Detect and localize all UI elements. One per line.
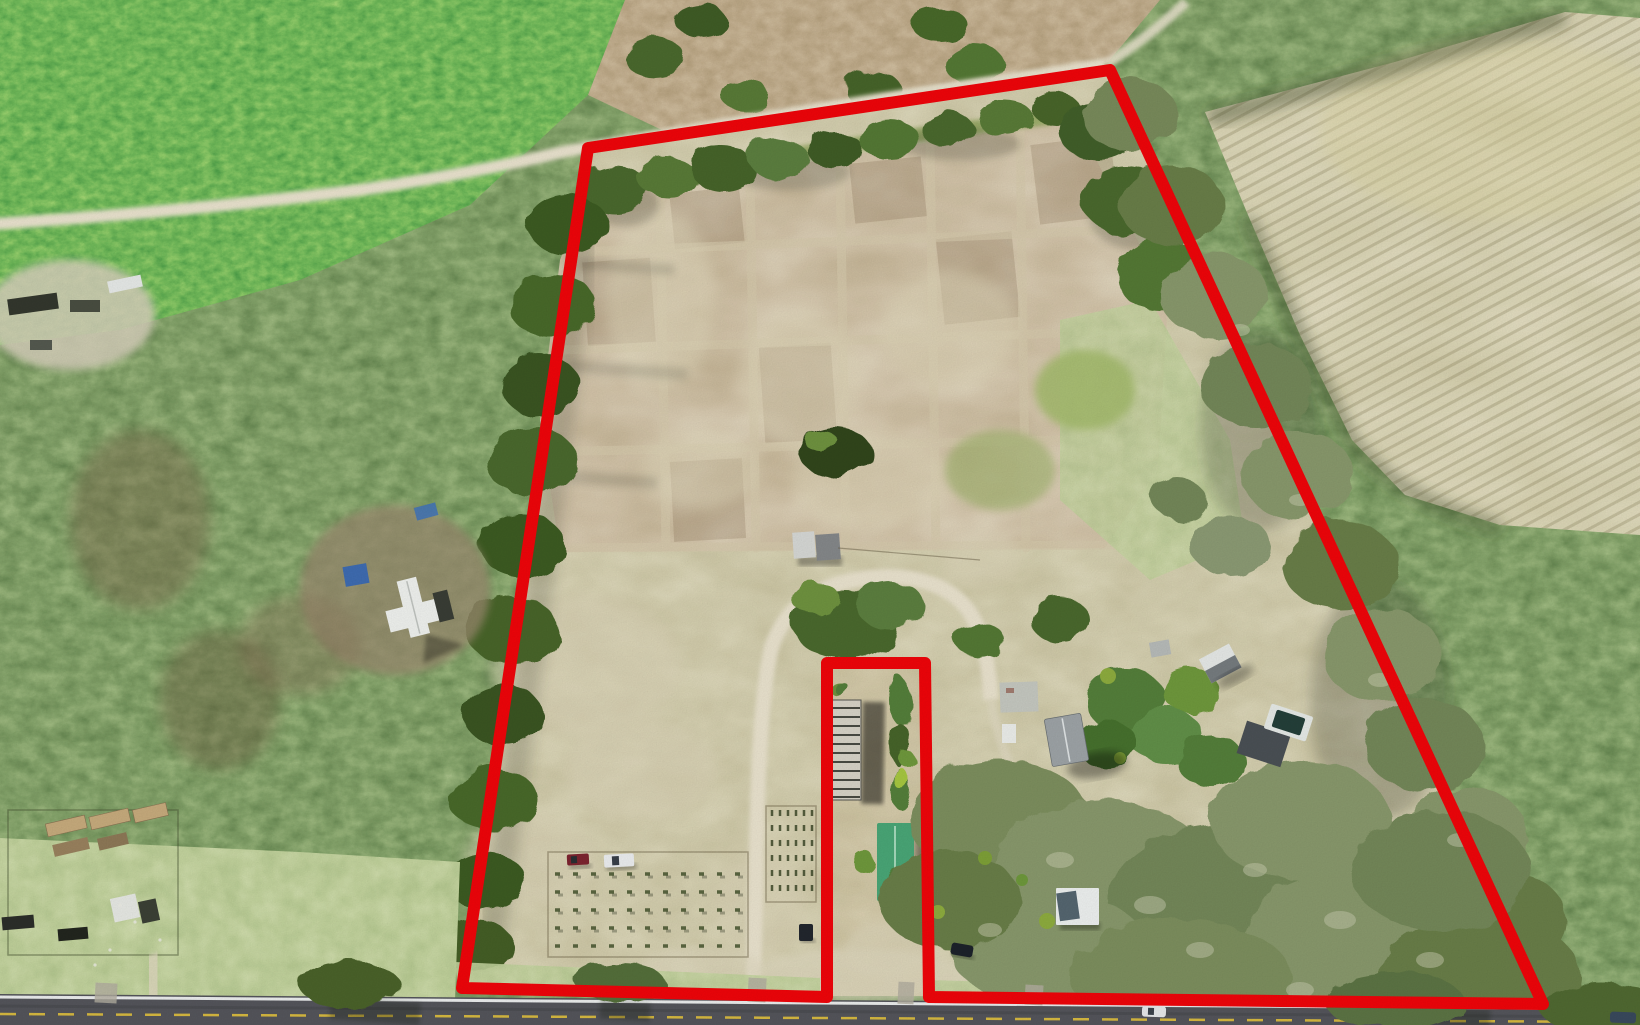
aerial-photo-canvas — [0, 0, 1640, 1025]
photo-grain-overlay — [0, 0, 1640, 1025]
aerial-photo — [0, 0, 1640, 1025]
